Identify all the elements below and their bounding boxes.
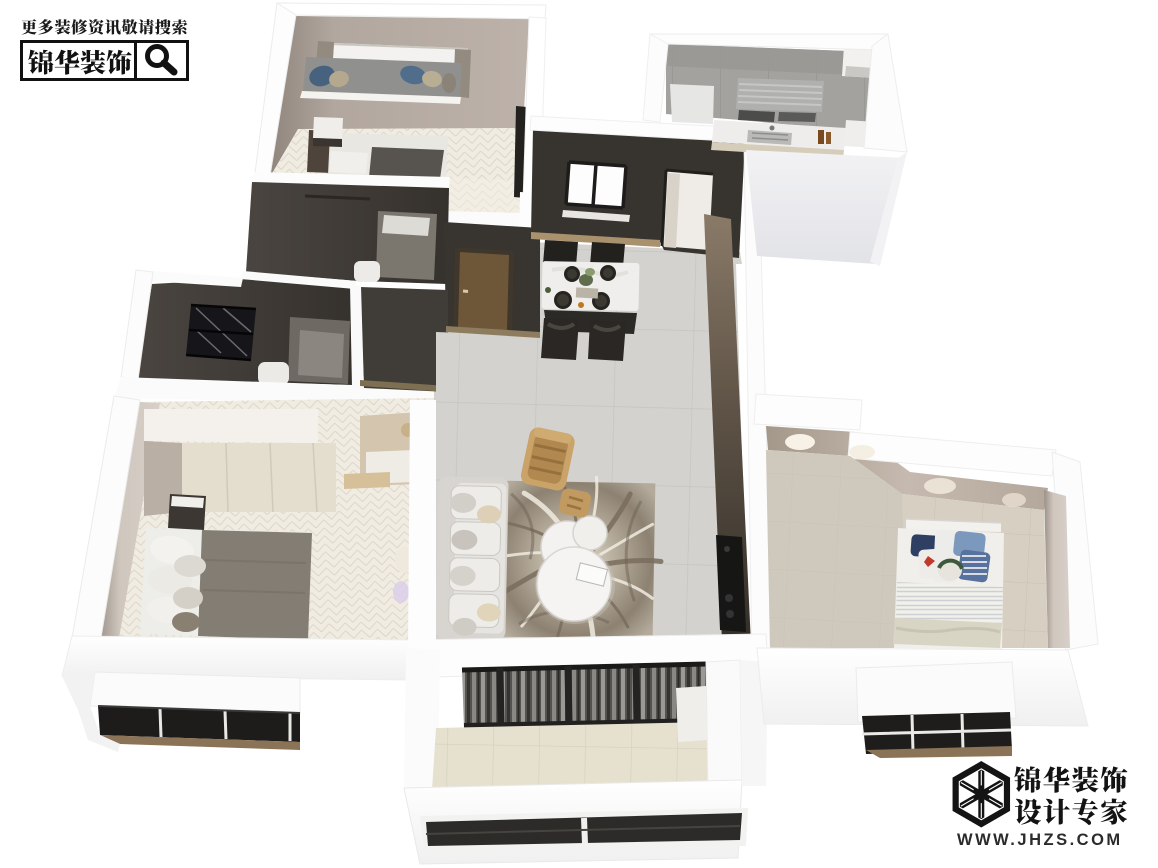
svg-text:WWW.JHZS.COM: WWW.JHZS.COM: [957, 831, 1123, 849]
